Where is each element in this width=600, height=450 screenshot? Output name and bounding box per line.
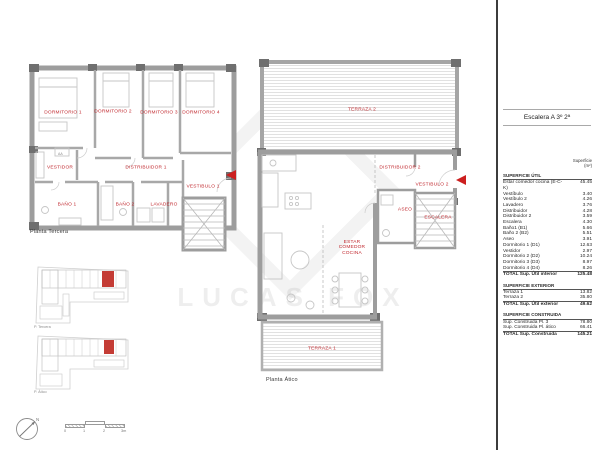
floorplan-sheet: { "titleblock": { "title": "Escalera A 3… [0,0,600,450]
table-row: SUPERFICIE EXTERIOR [503,283,592,290]
row-label: SUPERFICIE ÚTIL [503,173,565,179]
north-compass-icon: N [11,412,45,446]
row-label: Dormitorio 4 (D4) [503,266,565,272]
scale-label-0: 0 [64,429,66,433]
row-value: 35.80 [565,295,592,301]
scale-bar: 0 1 2 3m [65,420,135,436]
row-label: Sup. Construida Pl. ático [503,325,565,331]
row-label: SUPERFICIE EXTERIOR [503,283,565,289]
unit-title: Escalera A 3º 2ª [503,109,591,126]
row-label: Estar comedor cocina (E-C-K) [503,180,565,191]
table-row: TOTAL Sup. Útil exterior49.62 [503,301,592,308]
plan-caption-tercera: Planta Tercera [30,229,68,235]
table-row: Sup. Construida Pl. ático66.41 [503,325,592,331]
row-label: TOTAL Sup. Útil interior [503,272,565,278]
room-label-bano-1: BAÑO 1 [58,202,77,207]
key-plan-atico [28,332,136,390]
scale-label-3m: 3m [121,429,126,433]
planta-tercera-drawing: AA [25,60,240,255]
plan-caption-atico: Planta Ático [266,377,298,383]
unit-highlight [102,271,114,287]
room-label-estar-comedor-cocina: ESTAR COMEDOR COCINA [337,240,367,256]
compass-north-label: N [36,417,39,422]
room-label-vestidor: VESTIDOR [47,165,73,170]
room-label-vestibulo-1: VESTIBULO 1 [186,184,219,189]
room-label-dormitorio-4: DORMITORIO 4 [182,110,220,115]
open-plan-dashed-lines [323,155,375,313]
room-label-terraza-1: TERRAZA 1 [308,346,336,351]
room-label-dormitorio-1: DORMITORIO 1 [44,110,82,115]
table-row: TOTAL Sup. Útil interior125.48 [503,271,592,278]
room-label-vestibulo-2: VESTIBULO 2 [415,182,448,187]
key-plan-atico-caption: P. Ático [34,390,47,394]
row-value: 66.41 [565,325,592,331]
room-label-dormitorio-3: DORMITORIO 3 [140,110,178,115]
room-label-escalera: ESCALERA [424,215,451,220]
row-value: 145.21 [565,332,592,338]
room-label-bano-2: BAÑO 2 [116,202,135,207]
row-value: 49.62 [565,302,592,308]
table-col-header: Superficie (m²) [503,158,592,168]
table-row: Estar comedor cocina (E-C-K)45.45 [503,180,592,191]
room-label-lavadero: LAVADERO [150,202,177,207]
row-value: 125.48 [565,272,592,278]
ac-unit-label: AA [58,152,63,156]
table-row: TOTAL Sup. Construida145.21 [503,331,592,338]
key-plan-tercera [28,262,136,324]
row-label: Terraza 2 [503,295,565,301]
room-label-terraza-2: TERRAZA 2 [348,107,376,112]
table-row: Terraza 235.80 [503,295,592,301]
room-label-dormitorio-2: DORMITORIO 2 [94,109,132,114]
unit-highlight [104,340,114,354]
scale-label-1: 1 [83,429,85,433]
table-row: SUPERFICIE CONSTRUIDA [503,312,592,319]
row-label: TOTAL Sup. Útil exterior [503,302,565,308]
key-plan-tercera-caption: P. Tercera [34,325,51,329]
row-value: 8.26 [565,266,592,272]
row-value: 45.45 [565,180,592,186]
area-table: Superficie (m²) SUPERFICIE ÚTILEstar com… [503,158,592,338]
row-label: TOTAL Sup. Construida [503,332,565,338]
staircase [183,198,225,250]
panel-divider [496,0,498,450]
entry-arrow-atico [456,175,466,185]
area-rows: SUPERFICIE ÚTILEstar comedor cocina (E-C… [503,173,592,338]
room-label-aseo: ASEO [398,207,412,212]
table-row: Dormitorio 4 (D4)8.26 [503,266,592,272]
room-label-distribuidor-1: DISTRIBUIDOR 1 [125,165,166,170]
entry-arrow-tercera [226,170,236,180]
col-header-line2: (m²) [503,163,592,168]
row-label: SUPERFICIE CONSTRUIDA [503,312,565,318]
room-label-distribuidor-2: DISTRIBUIDOR 2 [379,165,420,170]
scale-label-2: 2 [103,429,105,433]
